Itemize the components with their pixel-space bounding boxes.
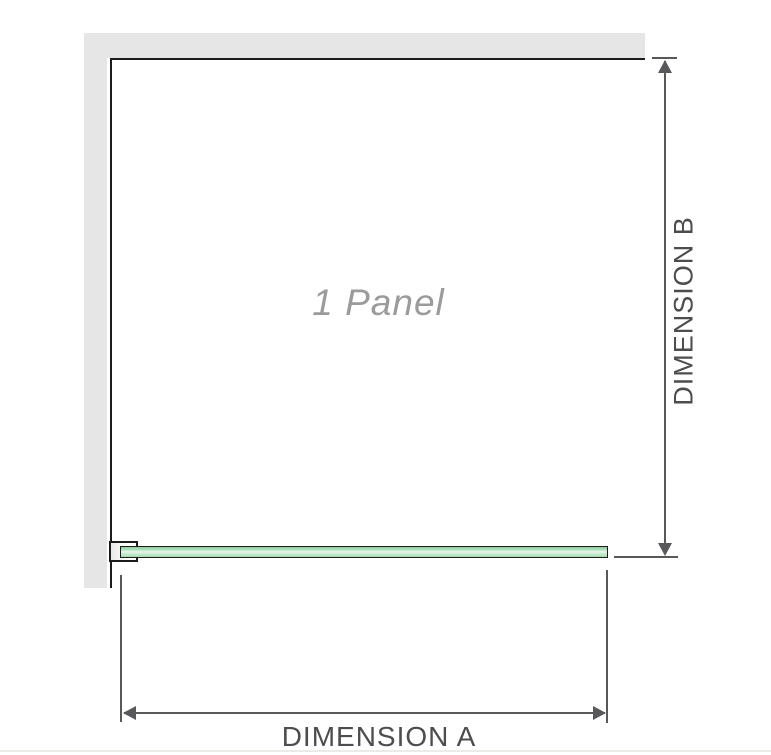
shower-panel-diagram: 1 Panel DIMENSION B DIMENSION A [0,0,771,755]
dimension-b-label: DIMENSION B [669,216,700,406]
wall-band-top [84,33,645,58]
dimension-b-top-tick [652,57,677,59]
dimension-a-line [124,712,605,714]
arrow-down-icon [658,543,672,556]
dimension-b-line [664,61,666,554]
extension-line-left [120,575,122,722]
arrow-left-icon [123,706,136,720]
bottom-rule [0,750,771,752]
wall-band-left [84,33,107,588]
panel-count-label: 1 Panel [112,60,645,546]
extension-line-right [606,570,608,723]
dimension-a-label: DIMENSION A [282,721,477,753]
dimension-b-bottom-tick [614,556,678,558]
glass-panel-bar [120,546,608,558]
arrow-up-icon [658,60,672,73]
arrow-right-icon [593,706,606,720]
